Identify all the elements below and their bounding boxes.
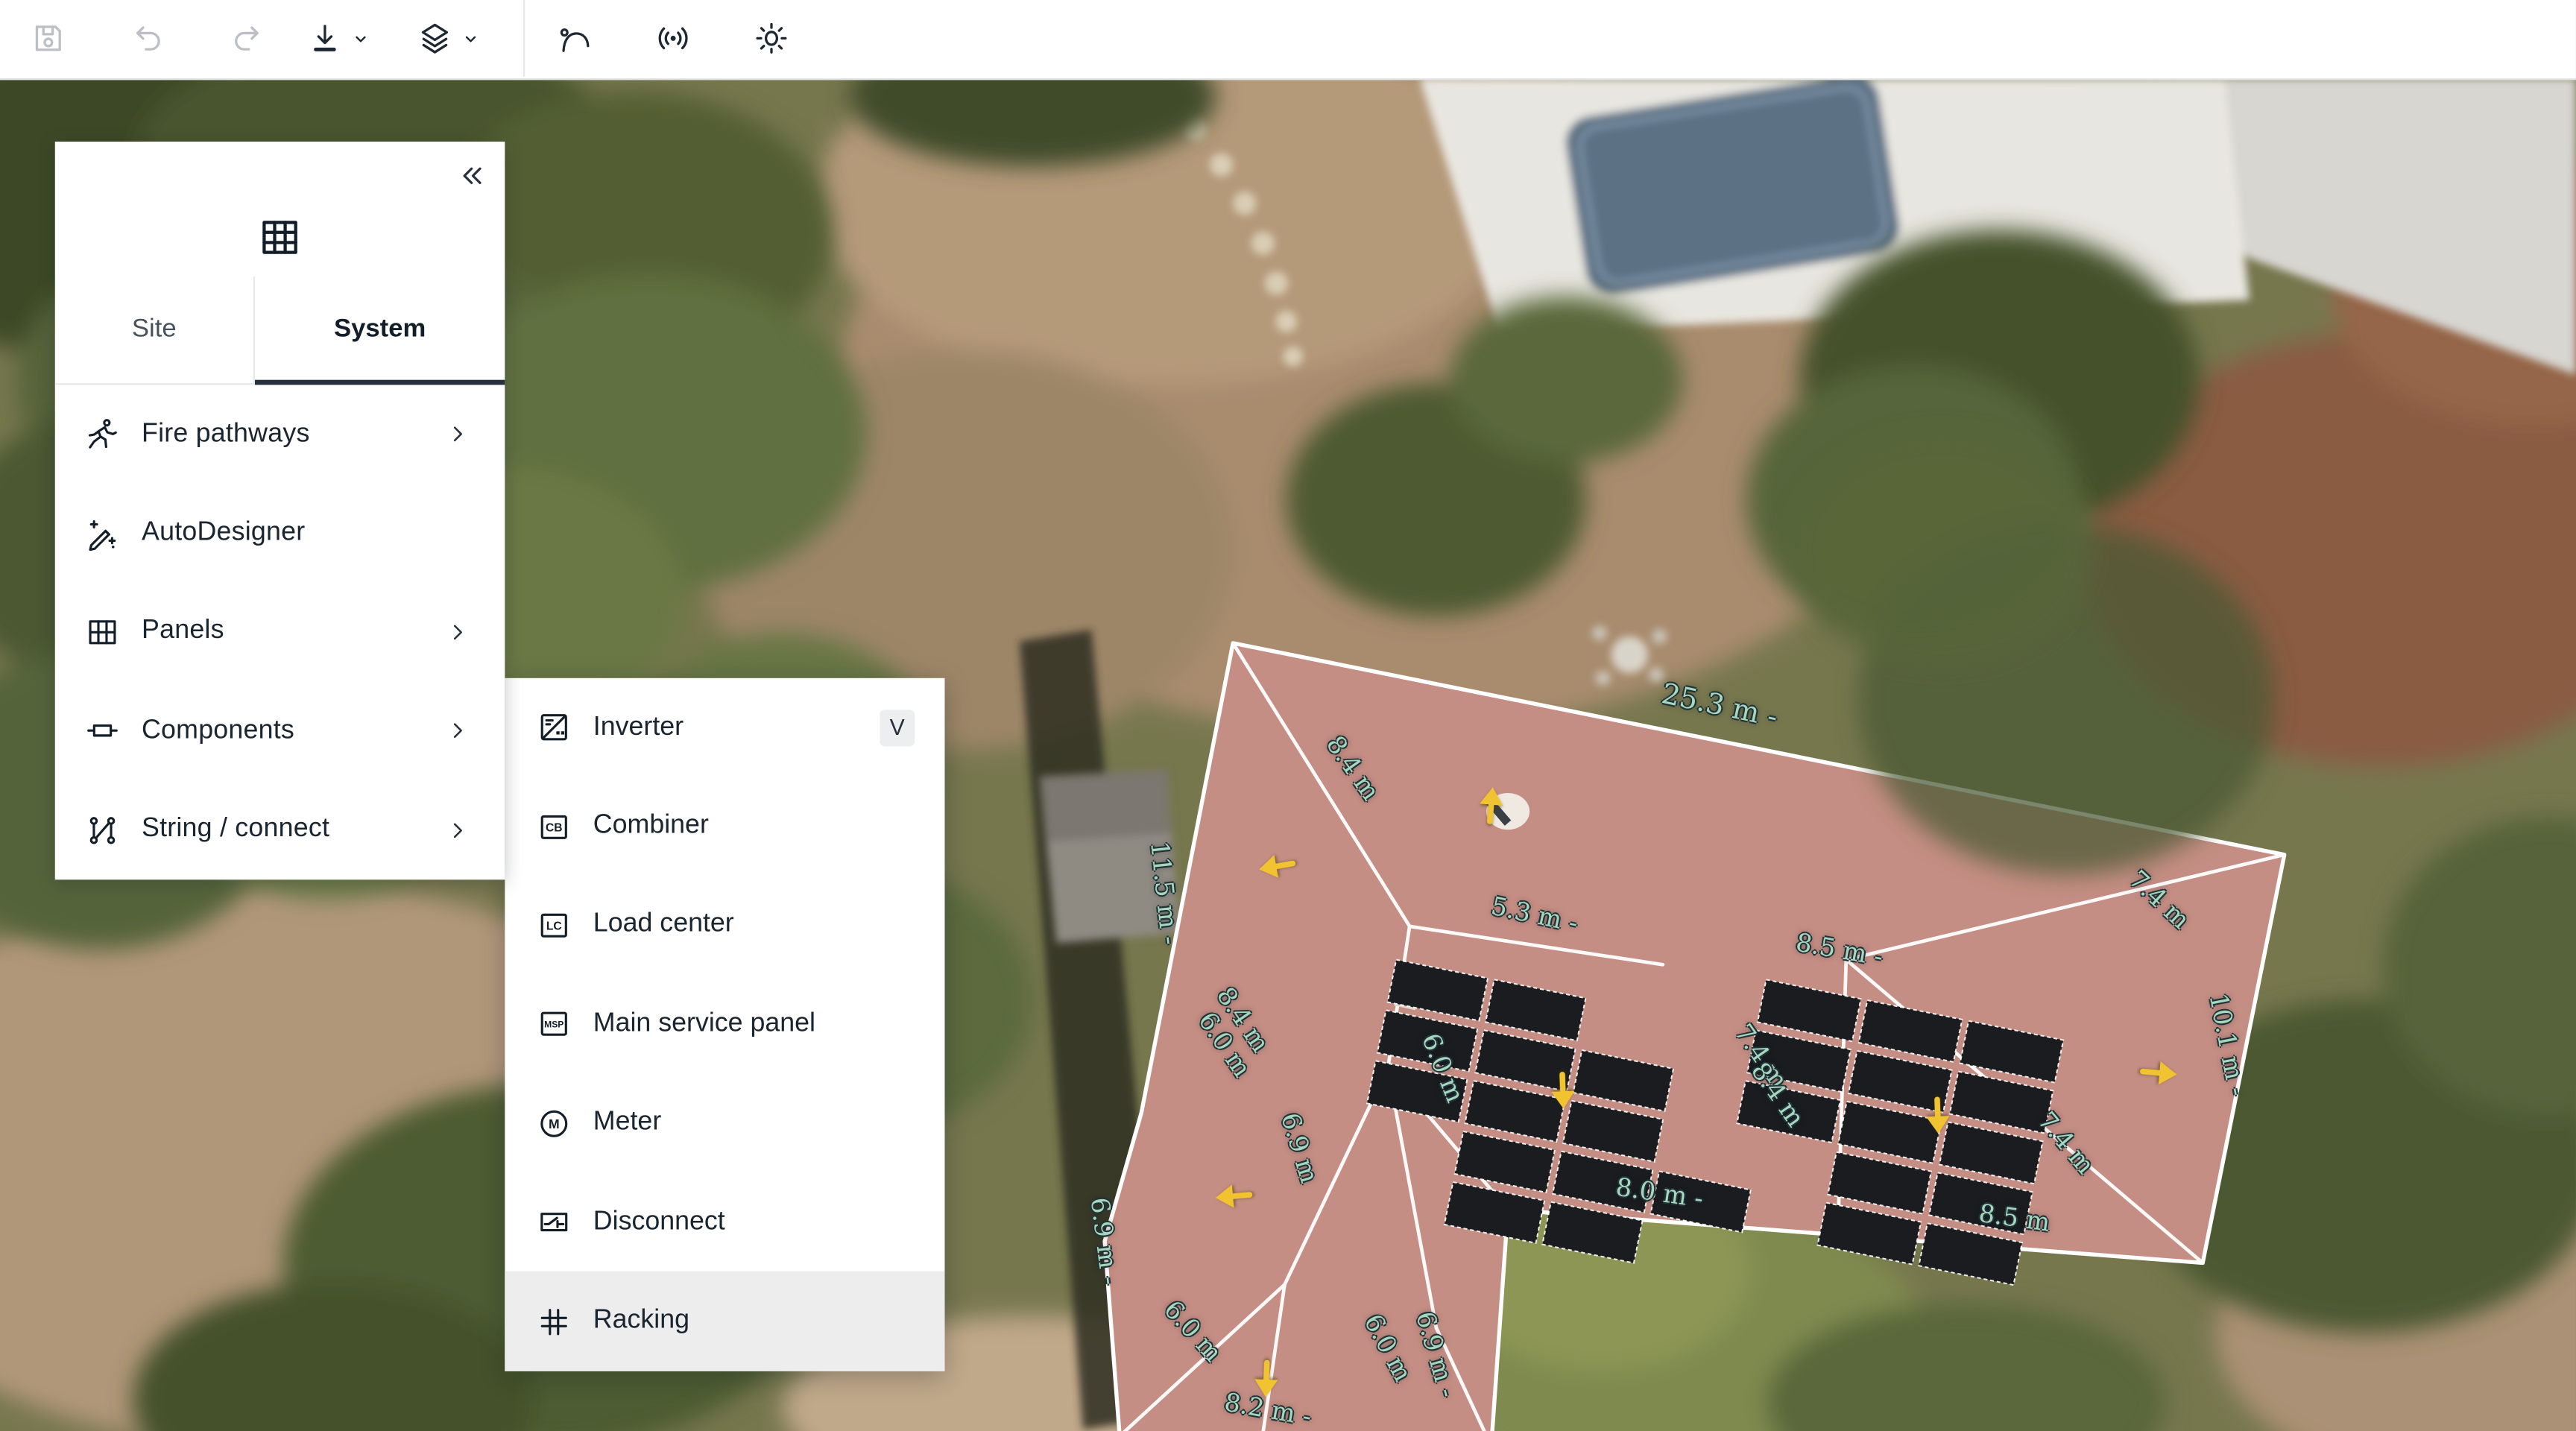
disconnect-icon: [537, 1205, 572, 1240]
submenu-item-label: Load center: [593, 911, 734, 941]
menu-item-label: String / connect: [142, 815, 329, 845]
azimuth-arrow[interactable]: [1541, 1069, 1585, 1113]
submenu-item-label: Combiner: [593, 812, 709, 841]
path-tool-button[interactable]: [538, 0, 611, 77]
meter-icon: M: [537, 1106, 572, 1141]
runner-icon: [85, 417, 120, 452]
toolbar: [0, 0, 2576, 80]
signal-icon: [655, 20, 692, 57]
redo-icon: [228, 20, 265, 57]
cb-icon: CB: [537, 809, 572, 844]
msp-icon: MSP: [537, 1007, 572, 1042]
components-submenu: InverterVCBCombinerLCLoad centerMSPMain …: [505, 678, 944, 1371]
design-panel: Site System Fire pathwaysAutoDesignerPan…: [55, 142, 505, 879]
lc-icon: LC: [537, 908, 572, 943]
menu-item-autodesigner[interactable]: AutoDesigner: [55, 484, 505, 583]
tab-site[interactable]: Site: [55, 277, 253, 383]
panel-grid-icon: [257, 215, 302, 268]
shortcut-badge: V: [880, 710, 915, 746]
svg-text:CB: CB: [546, 821, 563, 834]
racking-icon: [537, 1304, 572, 1339]
azimuth-arrow[interactable]: [1251, 841, 1301, 891]
svg-text:LC: LC: [546, 920, 562, 933]
submenu-item-inverter[interactable]: InverterV: [505, 678, 944, 777]
system-menu: Fire pathwaysAutoDesignerPanelsComponent…: [55, 385, 505, 879]
submenu-item-load-center[interactable]: LCLoad center: [505, 876, 944, 975]
chevron-right-icon: [443, 816, 472, 844]
grid-icon: [85, 615, 120, 650]
undo-icon: [130, 20, 166, 57]
toolbar-divider: [523, 0, 525, 77]
collapse-panel-button[interactable]: [453, 157, 490, 193]
menu-item-panels[interactable]: Panels: [55, 583, 505, 682]
menu-item-label: Panels: [142, 617, 224, 647]
component-icon: [85, 714, 120, 749]
panel-header: Site System: [55, 142, 505, 385]
grid9-icon: [257, 215, 302, 259]
submenu-item-label: Disconnect: [593, 1207, 725, 1237]
caret-down-icon: [459, 28, 481, 49]
submenu-item-racking[interactable]: Racking: [505, 1272, 944, 1371]
submenu-item-combiner[interactable]: CBCombiner: [505, 777, 944, 876]
menu-item-components[interactable]: Components: [55, 682, 505, 781]
panel-tabs: Site System: [55, 277, 505, 385]
svg-text:MSP: MSP: [544, 1020, 563, 1030]
azimuth-arrow[interactable]: [1244, 1357, 1289, 1402]
menu-item-fire-pathways[interactable]: Fire pathways: [55, 385, 505, 484]
inverter-icon: [537, 710, 572, 745]
caret-down-icon: [349, 28, 370, 49]
tab-system[interactable]: System: [253, 277, 505, 383]
layers-button[interactable]: [400, 0, 496, 77]
redo-button[interactable]: [210, 0, 283, 77]
chevron-right-icon: [443, 618, 472, 646]
menu-item-label: Fire pathways: [142, 420, 310, 449]
download-button[interactable]: [290, 0, 387, 77]
submenu-item-label: Meter: [593, 1108, 661, 1138]
submenu-item-main-service-panel[interactable]: MSPMain service panel: [505, 975, 944, 1074]
azimuth-arrow[interactable]: [1916, 1094, 1960, 1139]
curve-icon: [557, 20, 593, 57]
string-icon: [85, 812, 120, 847]
wand-icon: [85, 516, 120, 551]
signal-tool-button[interactable]: [637, 0, 710, 77]
menu-item-label: AutoDesigner: [142, 518, 305, 548]
tab-site-label: Site: [132, 315, 177, 344]
submenu-item-label: Inverter: [593, 713, 684, 742]
submenu-item-disconnect[interactable]: Disconnect: [505, 1173, 944, 1272]
menu-item-label: Components: [142, 716, 294, 746]
azimuth-arrow[interactable]: [1210, 1173, 1257, 1220]
submenu-item-meter[interactable]: MMeter: [505, 1074, 944, 1173]
download-icon: [306, 20, 342, 57]
layers-icon: [416, 20, 452, 57]
chevrons-left-icon: [455, 159, 487, 190]
app-window: 25.3 m -8.4 m11.5 m -5.3 m -8.5 m -7.4 m…: [0, 0, 2576, 1431]
azimuth-arrow[interactable]: [1468, 781, 1515, 828]
undo-button[interactable]: [112, 0, 185, 77]
sun-icon: [753, 20, 789, 57]
submenu-item-label: Racking: [593, 1307, 689, 1336]
submenu-item-label: Main service panel: [593, 1009, 815, 1039]
svg-text:M: M: [549, 1116, 560, 1131]
sun-tool-button[interactable]: [735, 0, 808, 77]
tab-system-label: System: [334, 315, 426, 344]
save-button[interactable]: [12, 0, 85, 77]
chevron-right-icon: [443, 717, 472, 745]
patio-table: [1611, 636, 1648, 673]
chevron-right-icon: [443, 420, 472, 449]
azimuth-arrow[interactable]: [2136, 1049, 2183, 1096]
menu-item-string-connect[interactable]: String / connect: [55, 780, 505, 879]
save-icon: [30, 20, 66, 57]
